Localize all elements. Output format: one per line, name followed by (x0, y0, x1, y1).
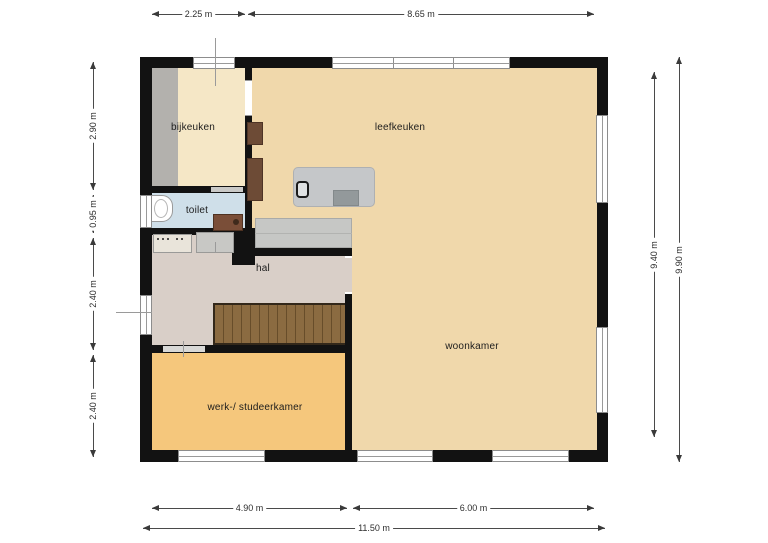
dim-left-seg4: 2.40 m (88, 355, 98, 457)
room-label-bijkeuken: bijkeuken (143, 122, 243, 133)
dim-bottom-seg1: 4.90 m (152, 503, 347, 513)
counter-edge (255, 233, 352, 234)
floor-plan: bijkeuken leefkeuken toilet hal woonkame… (0, 0, 768, 543)
island-sink (296, 181, 309, 198)
hob-dot (167, 238, 169, 240)
island-cooktop (333, 190, 359, 206)
vanity-sink-dot (233, 219, 239, 225)
window-right-upper (596, 115, 608, 203)
dim-left-seg3: 2.40 m (88, 238, 98, 350)
door-toilet (211, 187, 243, 192)
window-toilet-left (140, 195, 152, 228)
hob-dot (157, 238, 159, 240)
room-label-hal: hal (233, 263, 293, 274)
door-bijkeuken-leefkeuken (245, 80, 252, 116)
window-bijkeuken-top (193, 57, 235, 69)
dim-top-seg2: 8.65 m (248, 9, 594, 19)
hob-dot (176, 238, 178, 240)
staircase (213, 303, 352, 345)
dim-top-seg1: 2.25 m (152, 9, 245, 19)
appliance-divider (215, 242, 216, 253)
dim-right-inner: 9.40 m (649, 72, 659, 437)
front-door (140, 295, 152, 335)
hal-counter-hob (153, 234, 192, 253)
dim-bottom-seg2: 6.00 m (353, 503, 594, 513)
dim-bottom-total: 11.50 m (143, 523, 605, 533)
wall-chimney-block (232, 228, 255, 265)
dim-left-seg1: 2.90 m (88, 62, 98, 190)
ref-line (215, 38, 216, 86)
opening-hal-woonkamer (345, 256, 352, 294)
window-leefkeuken-top (332, 57, 510, 69)
kitchen-wall-cabinet-2 (247, 158, 263, 201)
window-bottom-woonkamer-1 (357, 450, 433, 462)
toilet-bowl (154, 199, 168, 218)
window-bottom-study (178, 450, 265, 462)
door-study-tick (183, 341, 184, 357)
window-right-lower (596, 327, 608, 413)
hob-dot (162, 238, 164, 240)
wall-kitchen-hal (248, 248, 352, 256)
room-label-toilet: toilet (167, 205, 227, 216)
dim-right-outer: 9.90 m (674, 57, 684, 462)
room-label-woonkamer: woonkamer (422, 341, 522, 352)
window-bottom-woonkamer-2 (492, 450, 569, 462)
room-label-werk-studeerkamer: werk-/ studeerkamer (180, 402, 330, 413)
dim-left-seg2: 0.95 m (88, 195, 98, 233)
front-door-tick (116, 312, 152, 313)
door-study (163, 346, 205, 352)
hob-dot (181, 238, 183, 240)
room-label-leefkeuken: leefkeuken (350, 122, 450, 133)
kitchen-wall-cabinet-1 (247, 122, 263, 145)
